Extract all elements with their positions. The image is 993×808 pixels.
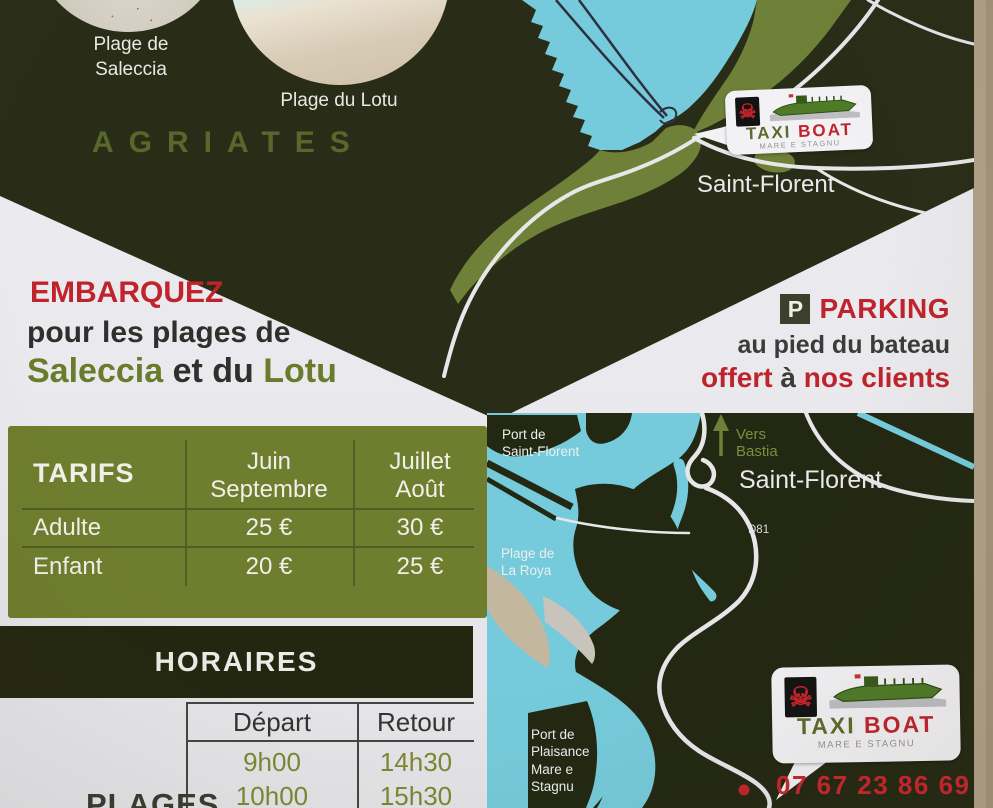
boat-icon	[821, 671, 954, 708]
saint-florent-label-top: Saint-Florent	[697, 171, 834, 199]
schedule-col-retour: Retour	[358, 707, 474, 738]
tarifs-cell: 25 €	[185, 514, 353, 542]
plage-la-roya-label: Plage de La Roya	[501, 545, 554, 580]
boat-icon	[763, 90, 866, 121]
tarifs-hline-2	[22, 546, 474, 548]
horaires-title: HORAIRES	[155, 646, 319, 678]
skull-icon: ☠	[784, 677, 817, 718]
lotu-photo-label: Plage du Lotu	[256, 89, 422, 114]
agriates-region-label: AGRIATES	[92, 126, 365, 160]
taxi-boat-logo-bubble-top: ☠ TAXI BOAT MARE E STAGNU	[725, 85, 874, 155]
schedule-col-depart: Départ	[187, 707, 357, 738]
saleccia-photo-label: Plage de Saleccia	[61, 33, 201, 82]
tarifs-cell: 30 €	[353, 514, 487, 542]
skull-icon: ☠	[735, 97, 760, 127]
tarifs-cell: 20 €	[185, 553, 353, 581]
schedule-hline-1	[186, 702, 474, 704]
parking-title: PARKING	[819, 293, 950, 325]
tarifs-hline-1	[22, 508, 474, 510]
schedule-hline-2	[186, 740, 474, 742]
horaires-band: HORAIRES	[0, 626, 473, 698]
logo-wordmark: TAXI BOAT	[772, 712, 960, 738]
tarifs-cell: 25 €	[353, 553, 487, 581]
saint-florent-label-bottom: Saint-Florent	[739, 466, 882, 495]
schedule-time: 9h00	[187, 747, 357, 778]
taxi-boat-logo-bubble-bottom: ☠ TAXI BOAT MARE E STAGNU	[771, 664, 961, 763]
d81-road-label: D81	[748, 524, 769, 536]
parking-title-row: P PARKING	[620, 293, 950, 325]
port-plaisance-label: Port de Plaisance Mare e Stagnu	[531, 726, 590, 795]
tarifs-row-label: Adulte	[33, 514, 101, 542]
tarifs-col-juin: Juin Septembre	[185, 448, 353, 505]
schedule-row-label-plages: PLAGES	[86, 787, 219, 808]
parking-line2: au pied du bateau	[620, 331, 950, 360]
schedule-time: 14h30	[358, 747, 474, 778]
vers-bastia-label: Vers Bastia	[736, 426, 778, 461]
port-saint-florent-label: Port de Saint-Florent	[502, 426, 579, 461]
embark-title: EMBARQUEZ	[30, 276, 223, 310]
tarifs-row-label: Enfant	[33, 553, 102, 581]
logo-tagline: MARE E STAGNU	[772, 737, 960, 751]
tarifs-title: TARIFS	[33, 458, 135, 489]
parking-icon: P	[780, 294, 810, 324]
parking-line3: offert à nos clients	[600, 362, 950, 394]
embark-destinations: Saleccia et du Lotu	[27, 352, 337, 391]
tarifs-table: TARIFS Juin Septembre Juillet Août Adult…	[8, 426, 487, 618]
tarifs-col-juillet: Juillet Août	[353, 448, 487, 505]
departure-point-marker	[739, 785, 750, 796]
embark-subtitle: pour les plages de	[27, 316, 290, 350]
poster-photo: Plage de Saleccia Plage du Lotu AGRIATES…	[0, 0, 993, 808]
schedule-time: 15h30	[358, 781, 474, 808]
phone-number: 07 67 23 86 69	[776, 770, 971, 801]
